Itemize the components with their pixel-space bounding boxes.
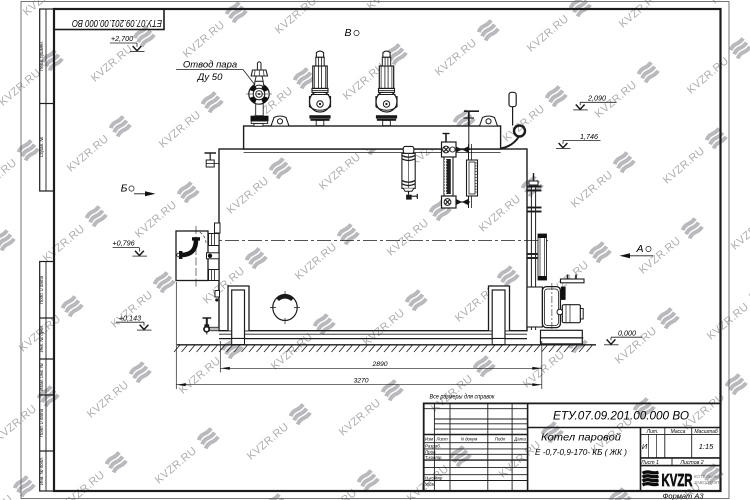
svg-text:KVZR: KVZR bbox=[662, 470, 693, 490]
svg-text:2890: 2890 bbox=[371, 361, 387, 368]
svg-text:Перв. примен.: Перв. примен. bbox=[39, 41, 44, 71]
svg-text:Дата: Дата bbox=[513, 437, 526, 442]
svg-text:Подп: Подп bbox=[495, 437, 506, 442]
svg-text:Е -0,7-0,9-170- КБ ( ЖК ): Е -0,7-0,9-170- КБ ( ЖК ) bbox=[535, 447, 627, 457]
svg-text:3270: 3270 bbox=[353, 377, 368, 384]
svg-text:Инв. № дубл.: Инв. № дубл. bbox=[39, 325, 44, 353]
svg-text:+2,700: +2,700 bbox=[111, 34, 133, 43]
svg-text:Утв.: Утв. bbox=[425, 482, 435, 487]
svg-text:Подп. и дата: Подп. и дата bbox=[39, 275, 44, 304]
svg-text:Разраб.: Разраб. bbox=[425, 444, 441, 449]
svg-text:1:15: 1:15 bbox=[699, 442, 714, 451]
svg-text:А: А bbox=[635, 243, 643, 255]
svg-text:+0,143: +0,143 bbox=[119, 313, 141, 322]
svg-text:2,090: 2,090 bbox=[587, 94, 606, 103]
svg-text:Подп. и дата: Подп. и дата bbox=[39, 408, 44, 437]
svg-text:Формат А3: Формат А3 bbox=[662, 492, 704, 500]
svg-text:Масса: Масса bbox=[671, 429, 686, 435]
svg-text:Изм: Изм bbox=[425, 437, 433, 442]
svg-text:Пров.: Пров. bbox=[425, 449, 437, 454]
svg-text:Б: Б bbox=[121, 183, 128, 195]
svg-text:N докум: N докум bbox=[461, 437, 478, 442]
svg-text:В: В bbox=[344, 27, 351, 39]
svg-text:Т.контр: Т.контр bbox=[425, 455, 442, 460]
svg-text:Справ. №: Справ. № bbox=[39, 137, 44, 158]
svg-text:0,000: 0,000 bbox=[618, 328, 636, 337]
svg-text:И: И bbox=[642, 442, 648, 451]
svg-text:КОТЕЛЬНЫЙ: КОТЕЛЬНЫЙ bbox=[694, 474, 722, 479]
svg-text:ЕТУ.07.09.201.00.000 ВО: ЕТУ.07.09.201.00.000 ВО bbox=[72, 17, 162, 28]
svg-text:Листов 2: Листов 2 bbox=[679, 460, 703, 466]
svg-text:Н.контр: Н.контр bbox=[425, 476, 443, 481]
svg-text:Лист: Лист bbox=[435, 437, 448, 442]
svg-text:Котел паровой: Котел паровой bbox=[541, 433, 621, 444]
svg-text:Лист 1: Лист 1 bbox=[640, 460, 659, 466]
svg-text:Все размеры для справок: Все размеры для справок bbox=[430, 393, 496, 400]
svg-text:+0,796: +0,796 bbox=[112, 239, 134, 248]
svg-text:ЕТУ.07.09.201.00.000 ВО: ЕТУ.07.09.201.00.000 ВО bbox=[553, 409, 689, 423]
svg-text:Ду 50: Ду 50 bbox=[197, 72, 223, 83]
svg-text:Отвод пара: Отвод пара bbox=[183, 60, 237, 71]
svg-text:1,746: 1,746 bbox=[580, 132, 598, 141]
svg-text:ЗАВОД РЭП: ЗАВОД РЭП bbox=[694, 480, 720, 485]
svg-text:Инв. № подл.: Инв. № подл. bbox=[39, 457, 44, 485]
svg-text:Лит.: Лит. bbox=[646, 429, 659, 435]
svg-text:Масштаб: Масштаб bbox=[694, 429, 718, 435]
svg-text:Взам. инв. №: Взам. инв. № bbox=[39, 363, 44, 391]
